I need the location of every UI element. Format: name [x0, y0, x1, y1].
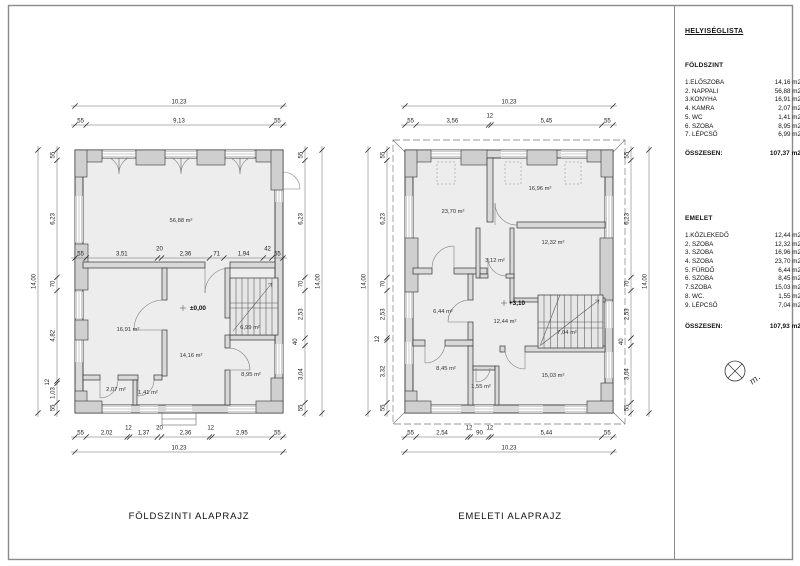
room-label-szoba4: 23,70 m²	[442, 209, 465, 215]
room-label-wc-upper: 1,55 m²	[471, 384, 491, 390]
dimension-label: 2,53	[625, 308, 631, 320]
room-label-szoba2: 12,32 m²	[542, 240, 565, 246]
room-row: 5. WC 1,41 m2	[685, 114, 800, 123]
dimension-label: 55	[274, 431, 281, 437]
dimension-label: 6,23	[625, 212, 631, 224]
dimension-label: 10,23	[501, 446, 517, 452]
room-name: 1.KÖZLEKEDŐ	[685, 232, 729, 241]
room-row: 4. SZOBA 23,70 m2	[685, 258, 800, 267]
room-label-kamra: 2,07 m²	[106, 387, 126, 393]
dimension-label: 55	[51, 151, 57, 158]
room-area: 14,16 m2	[775, 79, 800, 88]
dimension-label: 10,23	[501, 100, 517, 106]
dimension-label: 3,32	[381, 365, 387, 377]
dimension-label: 55	[77, 119, 84, 125]
upper-stairs	[538, 295, 603, 348]
room-area: 1,55 m2	[778, 293, 800, 302]
dimension-label: 9,13	[173, 119, 185, 125]
dimension-label: 55	[51, 404, 57, 411]
room-name: 3.KONYHA	[685, 96, 717, 105]
dimension-label: 40	[619, 338, 625, 345]
room-row: 4. KAMRA 2,07 m2	[685, 105, 800, 114]
ground-floor-plan: 56,88 m² 16,91 m² 14,16 m² 6,99 m² 8,95 …	[32, 100, 325, 455]
room-label-eloszoba: 14,16 m²	[180, 353, 203, 359]
dimension-label: 70	[299, 280, 305, 287]
room-area: 12,44 m2	[775, 232, 800, 241]
room-row: 6. SZOBA 8,45 m2	[685, 275, 800, 284]
dimension-label: 55	[604, 119, 611, 125]
room-name: 5. WC	[685, 114, 703, 123]
dimension-label: 70	[51, 280, 57, 287]
room-area: 12,32 m2	[775, 241, 800, 250]
dimension-label: 10,23	[171, 100, 187, 106]
dimension-label: 55	[381, 151, 387, 158]
dimension-label: 55	[299, 404, 305, 411]
dimension-label: 2,36	[180, 431, 192, 437]
room-label-wc: 1,41 m²	[138, 390, 158, 396]
dimension-label: 55	[274, 119, 281, 125]
dimension-label: 40	[293, 338, 299, 345]
total-value: 107,37 m2	[770, 150, 800, 157]
level-marker-upper: +3,10	[509, 300, 526, 307]
room-list-title: HELYISÉGLISTA	[685, 28, 800, 35]
room-area: 1,41 m2	[778, 114, 800, 123]
room-row: 3.KONYHA 16,91 m2	[685, 96, 800, 105]
room-area: 7,04 m2	[778, 302, 800, 311]
room-name: 8. WC.	[685, 293, 704, 302]
dimension-label: 55	[77, 252, 84, 258]
dimension-label: 70	[625, 280, 631, 287]
room-area: 15,03 m2	[775, 284, 800, 293]
room-row: 1.ELŐSZOBA 14,16 m2	[685, 79, 800, 88]
room-label-nappali: 56,88 m²	[170, 218, 193, 224]
dimension-label: 55	[625, 404, 631, 411]
room-name: 9. LÉPCSŐ	[685, 302, 718, 311]
total-row-foldszint: ÖSSZESEN: 107,37 m2	[685, 150, 800, 157]
room-label-szoba7: 15,03 m²	[542, 373, 565, 379]
dimension-label: 14,00	[362, 273, 368, 289]
dimension-label: 71	[213, 252, 220, 258]
room-area: 2,07 m2	[778, 105, 800, 114]
room-name: 6. SZOBA	[685, 275, 713, 284]
dimension-label: 12	[466, 426, 473, 432]
dimension-label: 1,03	[51, 386, 57, 398]
dimension-label: 2,53	[381, 308, 387, 320]
room-area: 8,95 m2	[778, 123, 800, 132]
room-row: 8. WC. 1,55 m2	[685, 293, 800, 302]
room-area: 23,70 m2	[775, 258, 800, 267]
room-row: 3. SZOBA 16,96 m2	[685, 249, 800, 258]
room-row: 7.SZOBA 15,03 m2	[685, 284, 800, 293]
dimension-label: 2,36	[180, 252, 192, 258]
room-row: 2. SZOBA 12,32 m2	[685, 241, 800, 250]
room-name: 2. NAPPALI	[685, 88, 718, 97]
room-row: 6. SZOBA 8,95 m2	[685, 123, 800, 132]
dimension-label: 4,82	[51, 329, 57, 341]
room-label-kozlekedo: 12,44 m²	[494, 319, 517, 325]
dimension-label: 6,23	[299, 212, 305, 224]
dimension-label: 1,94	[238, 252, 250, 258]
dimension-label: 20	[156, 247, 163, 253]
dimension-label: 3,04	[625, 368, 631, 380]
room-name: 7.SZOBA	[685, 284, 712, 293]
dimension-label: 1,37	[138, 431, 150, 437]
room-name: 7. LÉPCSŐ	[685, 131, 718, 140]
dimension-label: 12	[487, 426, 494, 432]
dimension-label: 55	[381, 404, 387, 411]
room-name: 1.ELŐSZOBA	[685, 79, 724, 88]
room-label-furdo: 6,44 m²	[433, 309, 453, 315]
room-list-emelet: 1.KÖZLEKEDŐ 12,44 m2 2. SZOBA 12,32 m2 3…	[685, 232, 800, 310]
room-area: 8,45 m2	[778, 275, 800, 284]
upper-floor-plan: 23,70 m² 16,96 m² 12,32 m² 3,12 m² 6,44 …	[362, 100, 652, 455]
dimension-label: 12	[486, 114, 493, 120]
dimension-label: 3,04	[299, 368, 305, 380]
dimension-label: 20	[156, 426, 163, 432]
dimension-label: 5,44	[541, 431, 553, 437]
dimension-label: 12	[375, 335, 381, 342]
dimension-label: 14,00	[643, 273, 649, 289]
dimension-label: 6,23	[51, 212, 57, 224]
dimension-label: 3,56	[447, 119, 459, 125]
dimension-label: 10,23	[171, 446, 187, 452]
dimension-label: 2,53	[299, 308, 305, 320]
dimension-label: 70	[381, 280, 387, 287]
room-name: 3. SZOBA	[685, 249, 713, 258]
room-label-szoba6: 8,45 m²	[436, 366, 456, 372]
dimension-label: 55	[407, 119, 414, 125]
room-row: 9. LÉPCSŐ 7,04 m2	[685, 302, 800, 311]
dimension-label: 3,51	[116, 252, 128, 258]
room-area: 16,91 m2	[775, 96, 800, 105]
dimension-label: 6,23	[381, 212, 387, 224]
total-label: ÖSSZESEN:	[685, 150, 723, 157]
room-name: 2. SZOBA	[685, 241, 713, 250]
total-value: 107,93 m2	[770, 323, 800, 330]
room-area: 16,96 m2	[775, 249, 800, 258]
dimension-label: 55	[77, 431, 84, 437]
room-list-foldszint: 1.ELŐSZOBA 14,16 m2 2. NAPPALI 56,88 m2 …	[685, 79, 800, 140]
dimension-label: 14,00	[32, 273, 38, 289]
room-list-panel: HELYISÉGLISTA FÖLDSZINT 1.ELŐSZOBA 14,16…	[675, 6, 800, 559]
section-heading-foldszint: FÖLDSZINT	[685, 62, 800, 69]
upper-plan-title: EMELETI ALAPRAJZ	[458, 511, 562, 522]
room-area: 6,99 m2	[778, 131, 800, 140]
room-name: 6. SZOBA	[685, 123, 713, 132]
room-row: 2. NAPPALI 56,88 m2	[685, 88, 800, 97]
dimension-label: 55	[407, 431, 414, 437]
drawing-sheet: 56,88 m² 16,91 m² 14,16 m² 6,99 m² 8,95 …	[0, 0, 800, 566]
dimension-label: 5,45	[541, 119, 553, 125]
ground-plan-title: FÖLDSZINTI ALAPRAJZ	[129, 511, 250, 522]
dimension-label: 55	[604, 431, 611, 437]
room-label-konyha: 16,91 m²	[117, 327, 140, 333]
section-heading-emelet: EMELET	[685, 215, 800, 222]
room-label-szoba: 8,95 m²	[241, 372, 261, 378]
total-row-emelet: ÖSSZESEN: 107,93 m2	[685, 323, 800, 330]
dimension-label: 55	[625, 151, 631, 158]
dimension-label: 2,54	[436, 431, 448, 437]
dimension-label: 55	[299, 151, 305, 158]
dimension-label: 42	[264, 247, 271, 253]
room-row: 7. LÉPCSŐ 6,99 m2	[685, 131, 800, 140]
room-label-szoba3: 16,96 m²	[529, 186, 552, 192]
room-area: 56,88 m2	[775, 88, 800, 97]
dimension-label: 2,95	[236, 431, 248, 437]
level-marker-ground: ±0,00	[190, 305, 206, 312]
room-name: 5. FÜRDŐ	[685, 267, 714, 276]
room-label-kisszoba: 3,12 m²	[485, 258, 505, 264]
room-label-lepcso: 6,99 m²	[240, 325, 260, 331]
room-area: 6,44 m2	[778, 267, 800, 276]
room-row: 1.KÖZLEKEDŐ 12,44 m2	[685, 232, 800, 241]
dimension-label: 90	[476, 431, 483, 437]
room-row: 5. FÜRDŐ 6,44 m2	[685, 267, 800, 276]
dimension-label: 14,00	[316, 273, 322, 289]
room-name: 4. SZOBA	[685, 258, 713, 267]
dimension-label: 12	[207, 426, 214, 432]
dimension-label: 55	[274, 252, 281, 258]
dimension-label: 2,02	[101, 431, 113, 437]
total-label: ÖSSZESEN:	[685, 323, 723, 330]
room-name: 4. KAMRA	[685, 105, 714, 114]
dimension-label: 12	[45, 378, 51, 385]
ground-entrance-stoop	[162, 413, 196, 425]
dimension-label: 12	[125, 426, 132, 432]
room-label-lepcso-upper: 7,04 m²	[557, 330, 577, 336]
